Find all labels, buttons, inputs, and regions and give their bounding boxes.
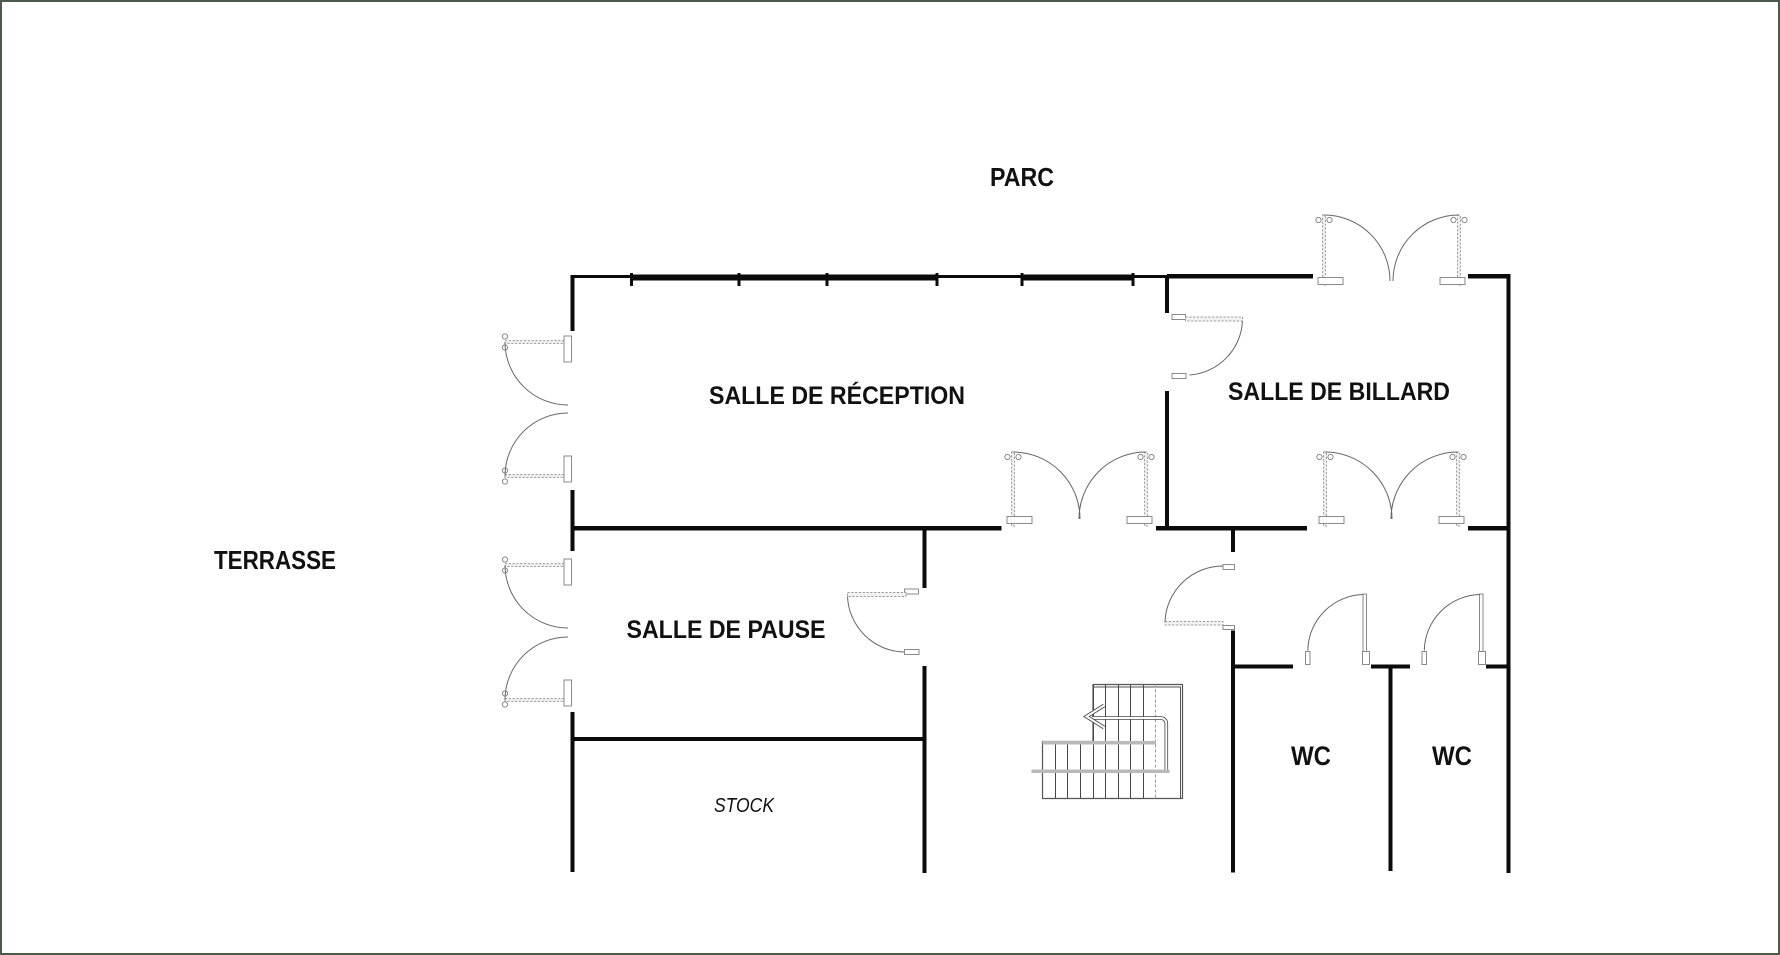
svg-text:TERRASSE: TERRASSE [214, 545, 336, 575]
svg-text:SALLE DE PAUSE: SALLE DE PAUSE [627, 616, 826, 644]
svg-text:SALLE DE BILLARD: SALLE DE BILLARD [1228, 378, 1450, 406]
svg-text:STOCK: STOCK [714, 795, 775, 817]
svg-text:PARC: PARC [990, 162, 1054, 192]
svg-text:WC: WC [1291, 741, 1331, 771]
svg-text:SALLE DE RÉCEPTION: SALLE DE RÉCEPTION [709, 381, 965, 410]
svg-text:WC: WC [1432, 741, 1472, 771]
